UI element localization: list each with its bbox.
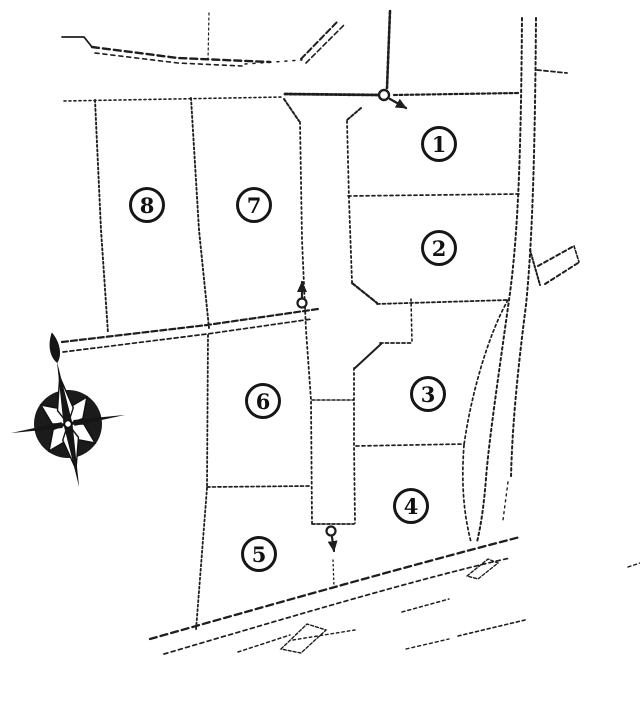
parcel-8-label: 8 xyxy=(129,187,165,223)
parcel-6-label: 6 xyxy=(245,383,281,419)
flow-arrow-middle xyxy=(298,282,307,308)
parcel-3-label: 3 xyxy=(410,376,446,412)
parcel-boundaries xyxy=(95,98,519,630)
bottom-road xyxy=(150,537,640,654)
parcel-2-label: 2 xyxy=(421,230,457,266)
north-boundary-line xyxy=(64,93,519,101)
central-road xyxy=(284,99,412,587)
parcel-4-label: 4 xyxy=(393,488,429,524)
parcel-1-label: 1 xyxy=(421,126,457,162)
plot-map-canvas xyxy=(0,0,640,721)
flow-arrow-top xyxy=(379,90,406,108)
top-road xyxy=(62,11,390,88)
right-road xyxy=(477,18,579,542)
parcel-7-label: 7 xyxy=(236,187,272,223)
plot-map: 1 2 3 4 5 6 7 8 xyxy=(0,0,640,721)
flow-arrow-bottom xyxy=(327,527,336,552)
parcel-5-label: 5 xyxy=(241,536,277,572)
compass-rose-icon xyxy=(0,322,136,497)
middle-road xyxy=(62,309,318,352)
